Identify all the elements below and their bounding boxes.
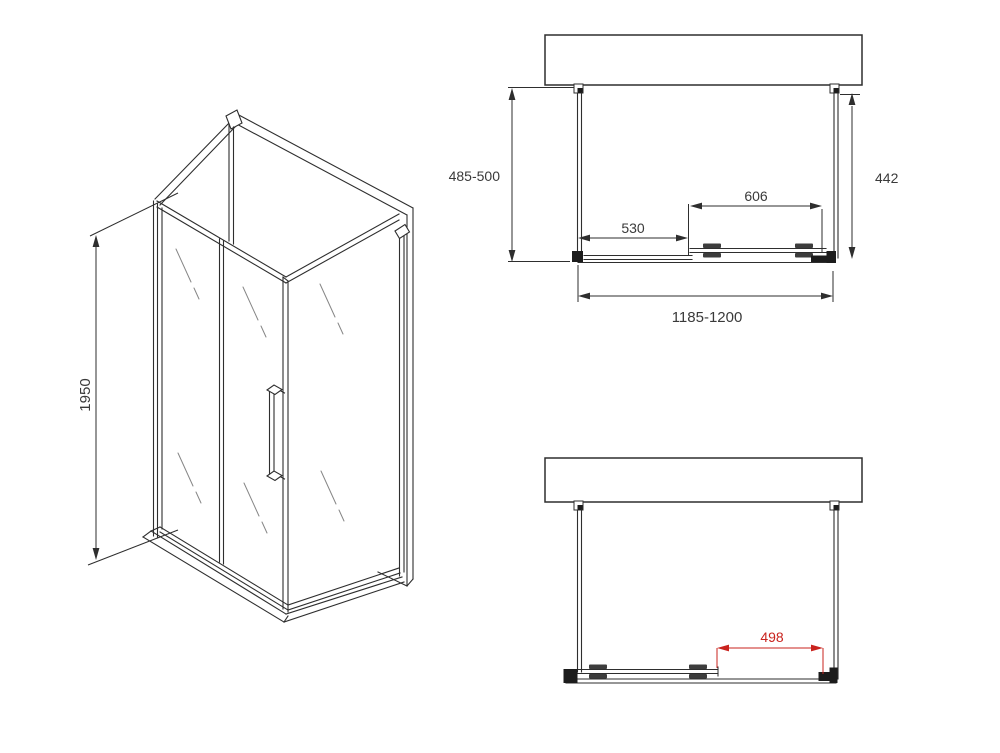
side-glass-panels-top-view (578, 93, 839, 258)
shower-enclosure-technical-drawing: 1950 (0, 0, 1000, 753)
door-roller (589, 665, 607, 679)
side-glass-panels-bottom-view (578, 510, 839, 679)
door-roller (795, 244, 813, 258)
corner-profile-right (830, 668, 838, 684)
wall-bracket-right (830, 84, 839, 93)
corner-profile-right (827, 251, 837, 263)
fixed-segment-dimension: 530 (578, 204, 689, 255)
top-plan-view: 485-500 442 530 606 (449, 35, 899, 326)
overall-width-dimension-label: 1185-1200 (672, 309, 743, 326)
door-handle (267, 385, 285, 481)
height-dimension-label: 1950 (77, 378, 94, 411)
depth-left-dimension-label: 485-500 (449, 168, 501, 184)
depth-left-dimension: 485-500 (449, 88, 574, 263)
door-roller (703, 244, 721, 258)
enclosure-frame (143, 124, 410, 622)
door-segment-dimension-label: 606 (744, 188, 768, 204)
wall-bracket-left (574, 501, 583, 510)
corner-profile-left (564, 669, 578, 683)
glass-shine-marks (176, 249, 344, 533)
depth-right-dimension-label: 442 (875, 170, 899, 186)
height-dimension: 1950 (77, 193, 178, 565)
wall-bracket-right (830, 501, 839, 510)
open-position-plan-view: 498 (545, 458, 862, 683)
door-closer-profile (819, 672, 832, 681)
wall-bracket-left (574, 84, 583, 93)
left-wall-panel (154, 121, 236, 538)
overall-width-dimension: 1185-1200 (578, 265, 833, 326)
door-closer-profile (811, 256, 828, 263)
fixed-segment-dimension-label: 530 (621, 220, 645, 236)
wall-hatch-top-view (545, 35, 862, 85)
wall-hatch-bottom-view (545, 458, 862, 502)
drawing-svg: 1950 (0, 0, 1000, 753)
front-assembly-bottom-view (564, 665, 838, 684)
opening-dimension-label: 498 (760, 629, 784, 645)
isometric-view: 1950 (77, 110, 413, 622)
back-wall-panel (226, 110, 413, 586)
depth-right-dimension: 442 (840, 93, 899, 259)
door-roller (689, 665, 707, 679)
corner-profile-left (572, 251, 583, 262)
door-segment-dimension: 606 (690, 188, 822, 252)
front-assembly-top-view (572, 244, 836, 264)
opening-dimension: 498 (717, 629, 823, 674)
